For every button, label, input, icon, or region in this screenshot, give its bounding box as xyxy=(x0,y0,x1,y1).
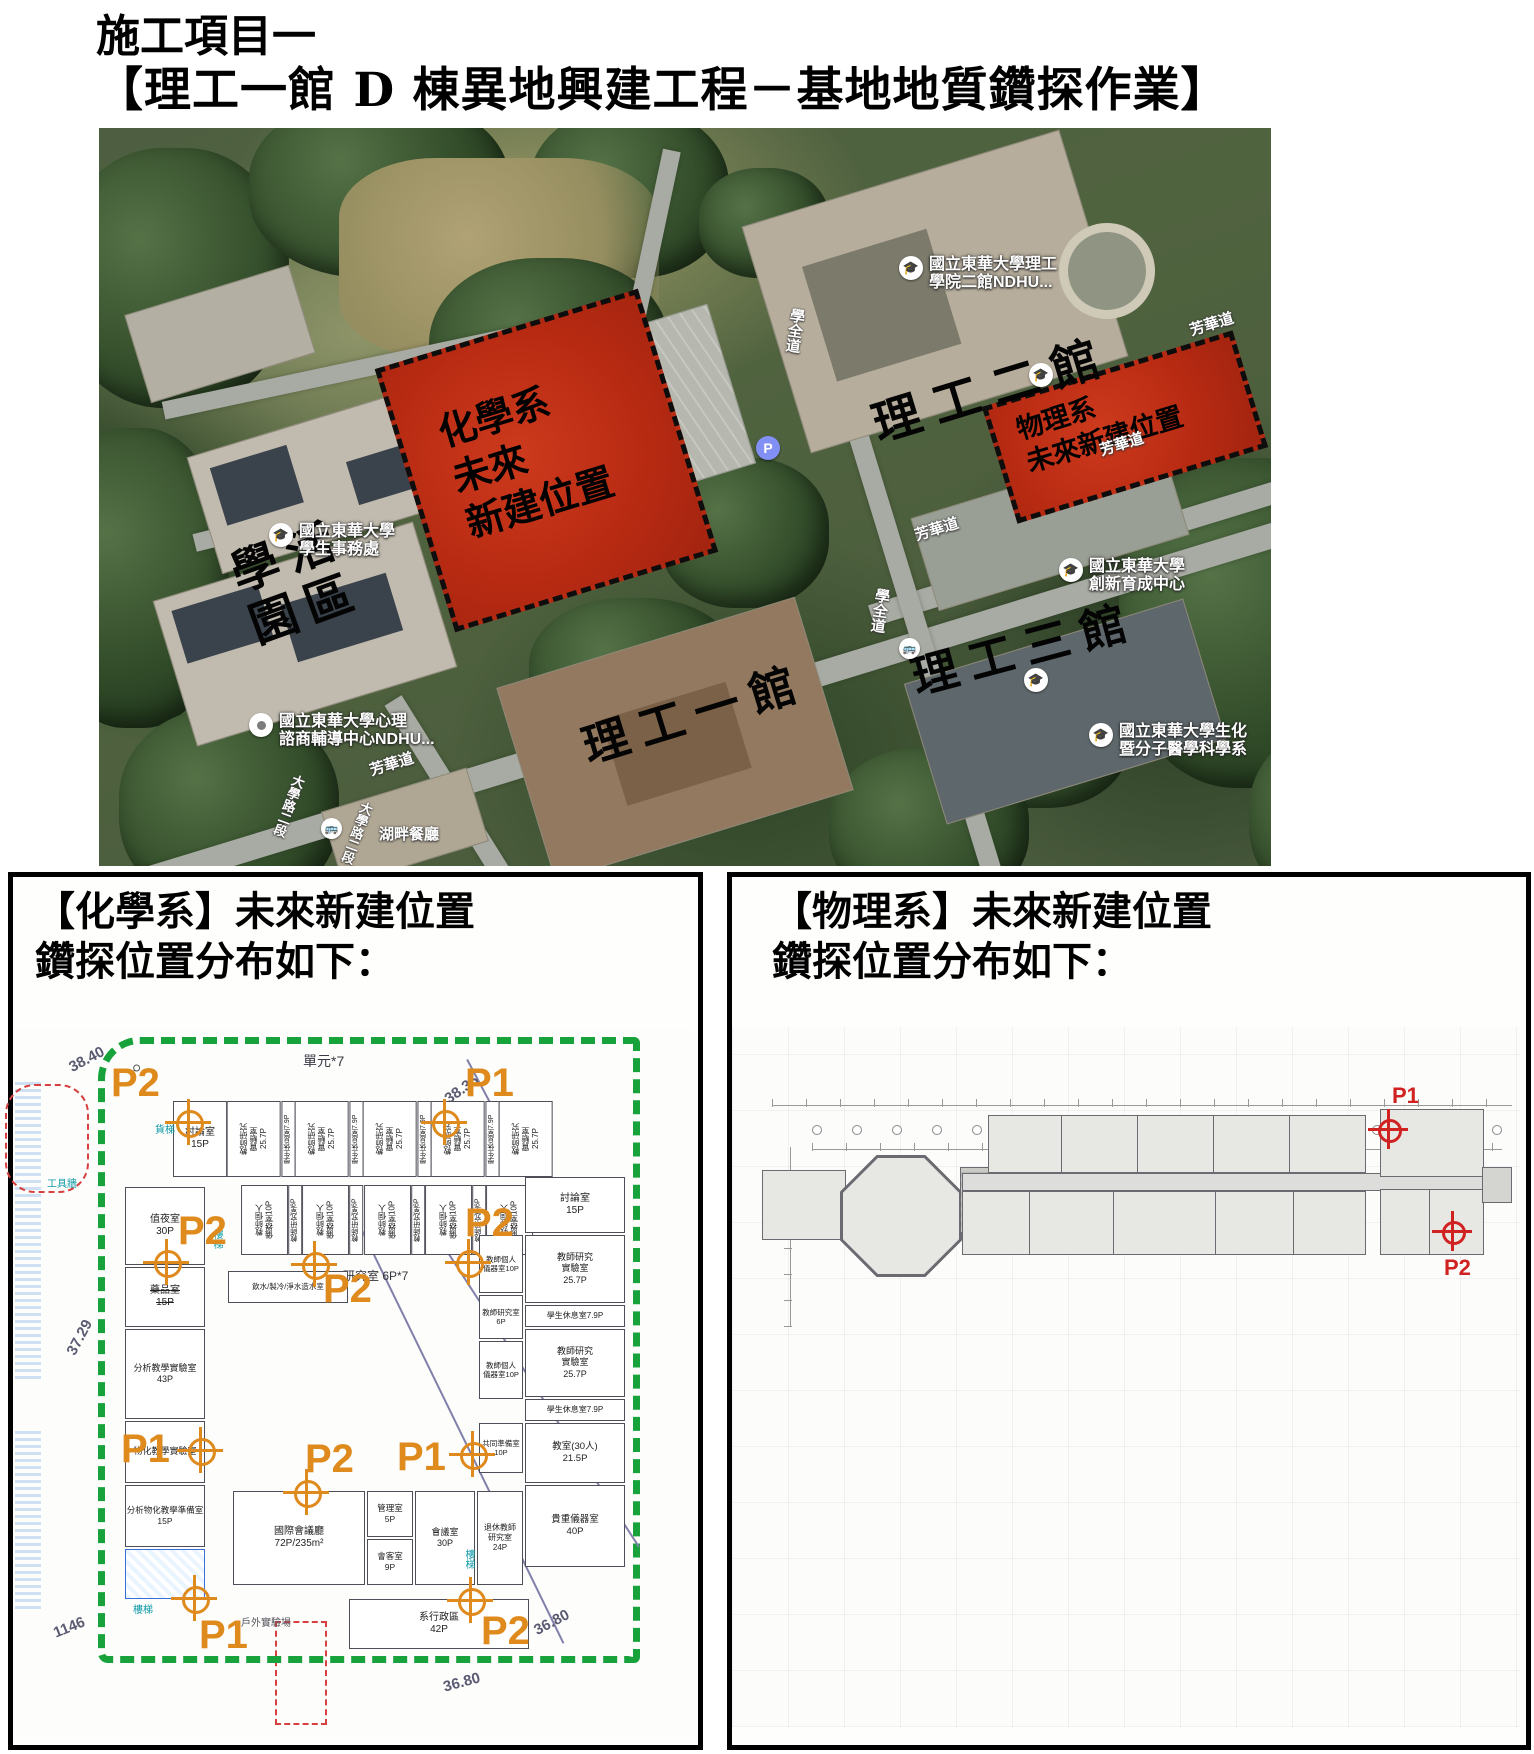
poi-student-affairs: 🎓 國立東華大學 學生事務處 xyxy=(269,523,395,560)
room-teacher-lab: 教師研究 實驗室 25.7P xyxy=(227,1101,281,1177)
room-teacher-office: 教師研究室6P xyxy=(411,1185,425,1255)
drill-label-P2: P2 xyxy=(178,1209,227,1254)
room-analysis-lab: 分析教學實驗室 43P xyxy=(125,1329,205,1419)
poi-label: 國立東華大學 創新育成中心 xyxy=(1089,558,1185,595)
partition xyxy=(1293,1192,1294,1254)
chemistry-panel: 【化學系】未來新建位置 鑽探位置分布如下： ⌕ 38.40 38.35 37.2… xyxy=(8,872,703,1750)
school-icon: 🎓 xyxy=(269,523,293,547)
drill-label-P1: P1 xyxy=(397,1435,446,1480)
lower-room-row xyxy=(962,1191,1366,1255)
chem-header-line1: 【化學系】未來新建位置 xyxy=(35,887,475,937)
solar-roof xyxy=(210,445,304,526)
room-discussion-2: 討論室 15P xyxy=(525,1177,625,1233)
physics-floor-plan: P1 P2 xyxy=(732,1027,1520,1727)
chemistry-floor-plan: ⌕ 38.40 38.35 37.29 37.46 1146 1147 36.8… xyxy=(13,1029,695,1735)
room-prep: 分析物化教學準備室 15P xyxy=(125,1485,205,1547)
chemistry-zone-label: 化學系 未來 新建位置 xyxy=(433,367,620,548)
school-icon: 🎓 xyxy=(1059,558,1083,582)
room-student-rest: 學生休息室7.9P xyxy=(281,1101,295,1177)
east-annex xyxy=(1482,1167,1512,1203)
poi-label: 國立東華大學 學生事務處 xyxy=(299,523,395,560)
unit-count-label: 單元*7 xyxy=(303,1051,344,1071)
room-teacher-personal: 教師個人 儀器室10P xyxy=(364,1185,411,1255)
room-teacher-personal: 教師個人 儀器室10P xyxy=(241,1185,288,1255)
bus-stop-icon: 🚌 xyxy=(321,818,342,839)
room-teacher-office-e: 教師研究室6P xyxy=(479,1295,523,1339)
map-pin-icon xyxy=(249,713,273,737)
room-teacher-lab: 教師研究 實驗室 25.7P xyxy=(363,1101,417,1177)
stair-label: 樓梯 xyxy=(133,1601,153,1616)
room-student-rest-e: 學生休息室7.9P xyxy=(525,1305,625,1327)
drill-label-P2: P2 xyxy=(323,1267,372,1312)
room-retired-teacher: 退休教師 研究室 24P xyxy=(477,1491,523,1585)
school-icon: 🎓 xyxy=(1029,363,1053,387)
room-meeting: 會議室 30P xyxy=(415,1491,475,1585)
room-classroom30: 教室(30人) 21.5P xyxy=(525,1423,625,1483)
school-icon: 🎓 xyxy=(1024,668,1048,692)
drill-label-P1: P1 xyxy=(465,1061,514,1106)
drill-label-P2: P2 xyxy=(111,1061,160,1106)
drill-label-P2: P2 xyxy=(465,1201,514,1246)
partition xyxy=(1215,1192,1216,1254)
poi-label: 國立東華大學心理 諮商輔導中心NDHU... xyxy=(279,713,435,750)
drill-label-P1: P1 xyxy=(199,1613,248,1658)
room-student-rest: 學生休息室7.9P xyxy=(349,1101,363,1177)
courtyard xyxy=(802,229,961,382)
stair-label: 樓梯 xyxy=(461,1549,476,1569)
poi-biochem: 🎓 國立東華大學生化 暨分子醫學科學系 xyxy=(1089,723,1247,760)
chemistry-panel-header: 【化學系】未來新建位置 鑽探位置分布如下： xyxy=(35,887,475,987)
room-student-rest-e: 學生休息室7.9P xyxy=(525,1399,625,1421)
drill-marker-P2 xyxy=(165,1099,211,1145)
phys-header-line1: 【物理系】未來新建位置 xyxy=(772,887,1212,937)
physics-panel-header: 【物理系】未來新建位置 鑽探位置分布如下： xyxy=(772,887,1212,987)
room-teacher-lab-e: 教師研究 實驗室 25.7P xyxy=(525,1329,625,1397)
partition xyxy=(1289,1116,1290,1172)
outdoor-area-label: 戶外實驗場 xyxy=(241,1614,291,1629)
poi-incubation: 🎓 國立東華大學 創新育成中心 xyxy=(1059,558,1185,595)
phys-header-line2: 鑽探位置分布如下： xyxy=(772,937,1212,987)
blueprint-margin-texture xyxy=(15,1429,41,1609)
drill-marker-P1 xyxy=(177,1427,223,1473)
drill-label-P1: P1 xyxy=(1392,1083,1419,1109)
partition xyxy=(1029,1192,1030,1254)
school-icon: 🎓 xyxy=(1089,723,1113,747)
school-icon: 🎓 xyxy=(899,256,923,280)
poi-label: 國立東華大學理工 學院二館NDHU... xyxy=(929,256,1057,293)
parking-icon: P xyxy=(756,436,780,460)
room-teacher-lab: 教師研究 實驗室 25.7P xyxy=(499,1101,553,1177)
partition xyxy=(1113,1192,1114,1254)
teacher-lab-row: 教師研究 實驗室 25.7P 學生休息室7.9P 教師研究 實驗室 25.7P … xyxy=(227,1101,553,1175)
slide-title: 施工項目一 【理工一館 D 棟異地興建工程－基地地質鑽探作業】 xyxy=(96,12,1516,119)
drill-label-P2: P2 xyxy=(305,1437,354,1482)
poi-label: 國立東華大學生化 暨分子醫學科學系 xyxy=(1119,723,1247,760)
octagon-hall xyxy=(843,1158,959,1274)
upper-room-row xyxy=(988,1115,1366,1173)
poi-counseling: 國立東華大學心理 諮商輔導中心NDHU... xyxy=(249,713,435,750)
poi-lakeside-restaurant: 湖畔餐廳 xyxy=(379,823,439,844)
room-guest: 會客室 9P xyxy=(367,1539,413,1585)
drill-marker-P2 xyxy=(1432,1211,1472,1251)
contour-label: 1146 xyxy=(51,1614,88,1642)
partition xyxy=(1429,1190,1430,1254)
title-line-2: 【理工一館 D 棟異地興建工程－基地地質鑽探作業】 xyxy=(96,63,1516,119)
drill-marker-P1 xyxy=(449,1431,495,1477)
room-student-rest: 學生休息室7.9P xyxy=(485,1101,499,1177)
contour-label: 36.80 xyxy=(441,1669,482,1695)
tool-wall-note: 工具牆 xyxy=(47,1175,77,1190)
partition xyxy=(1137,1116,1138,1172)
west-annex xyxy=(762,1170,846,1240)
chem-header-line2: 鑽探位置分布如下： xyxy=(35,937,475,987)
title-line-1: 施工項目一 xyxy=(96,12,1516,63)
room-teacher-lab-e: 教師研究 實驗室 25.7P xyxy=(525,1235,625,1303)
campus-satellite-map: 化學系 未來 新建位置 物理系 未來新建位置 理工二館 學活 園區 理工一館 理… xyxy=(99,128,1271,866)
partition xyxy=(1061,1116,1062,1172)
road-label-xuequan: 學全道 xyxy=(866,587,893,634)
room-teacher-lab: 教師研究 實驗室 25.7P xyxy=(295,1101,349,1177)
room-heavy-instrument: 貴重儀器室 40P xyxy=(525,1485,625,1567)
road-label-fanghua: 芳華道 xyxy=(367,747,416,780)
drill-label-P2: P2 xyxy=(481,1609,530,1654)
bus-stop-icon: 🚌 xyxy=(899,638,920,659)
drill-marker-P1 xyxy=(1368,1109,1408,1149)
physics-panel: 【物理系】未來新建位置 鑽探位置分布如下： xyxy=(727,872,1531,1750)
room-manager: 管理室 5P xyxy=(367,1491,413,1537)
contour-label: 37.29 xyxy=(63,1317,96,1358)
drill-label-P2: P2 xyxy=(1444,1255,1471,1281)
poi-science2: 🎓 國立東華大學理工 學院二館NDHU... xyxy=(899,256,1057,293)
drill-marker-P1 xyxy=(421,1099,467,1145)
drill-label-P1: P1 xyxy=(121,1427,170,1472)
room-teacher-office: 教師研究室6P xyxy=(349,1185,363,1255)
room-teacher-personal-e: 教師個人 儀器室10P xyxy=(479,1341,523,1399)
partition xyxy=(1213,1116,1214,1172)
